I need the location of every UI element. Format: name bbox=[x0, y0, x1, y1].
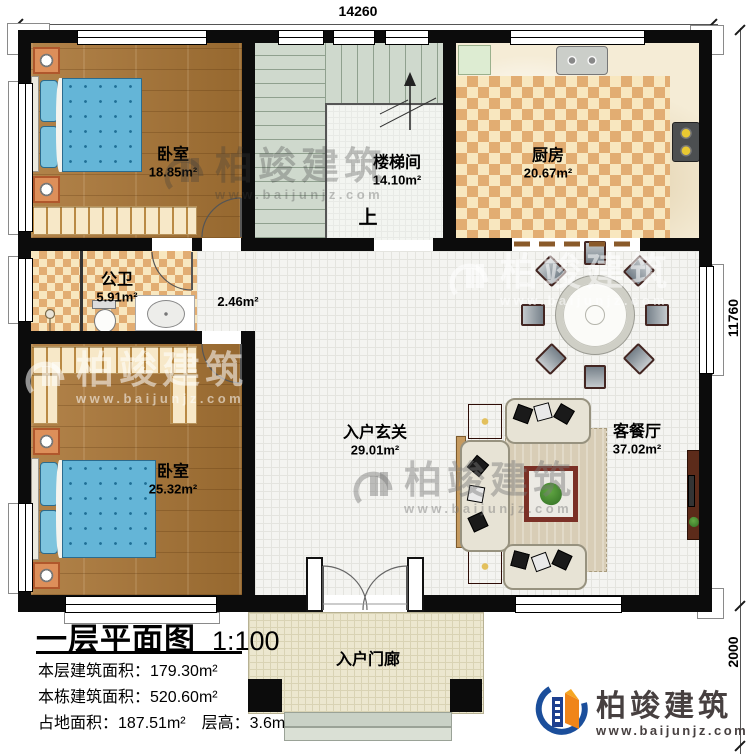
porch-step bbox=[284, 712, 452, 727]
wall bbox=[443, 43, 456, 238]
wall bbox=[433, 238, 512, 251]
wardrobe bbox=[31, 346, 197, 374]
dining-table bbox=[556, 276, 634, 354]
nightstand bbox=[33, 562, 60, 589]
entry-hall-label: 入户玄关 29.01m² bbox=[343, 424, 407, 459]
floor-plan-canvas: 14260 11760 2000 bbox=[0, 0, 750, 754]
brand-name: 柏竣建筑 bbox=[596, 691, 748, 723]
stairwell-label: 楼梯间 14.10m² bbox=[373, 154, 421, 189]
dining-chair bbox=[584, 365, 606, 389]
bedroom2-label: 卧室 25.32m² bbox=[149, 463, 197, 498]
corridor-floor bbox=[197, 251, 255, 331]
porch-label: 入户门廊 bbox=[336, 650, 400, 669]
end-table bbox=[468, 404, 502, 439]
room-area: 20.67m² bbox=[524, 166, 572, 182]
wall bbox=[241, 238, 374, 251]
room-name: 厨房 bbox=[532, 147, 564, 166]
porch-column bbox=[450, 679, 482, 712]
window bbox=[18, 258, 33, 322]
wall bbox=[242, 344, 255, 595]
wall bbox=[18, 238, 152, 251]
nightstand bbox=[33, 47, 60, 74]
door-jamb bbox=[306, 557, 323, 612]
stat-floor-area: 本层建筑面积：179.30m² bbox=[38, 659, 285, 685]
window bbox=[333, 30, 375, 45]
door-jamb bbox=[407, 557, 424, 612]
dining-table-center bbox=[585, 305, 605, 325]
dimension-right-value: 11760 bbox=[725, 290, 741, 346]
room-name: 公卫 bbox=[101, 271, 133, 290]
room-area: 29.01m² bbox=[351, 443, 399, 459]
dining-chair bbox=[584, 241, 606, 265]
porch-step bbox=[284, 727, 452, 741]
kitchen-sink bbox=[556, 46, 608, 75]
room-area: 18.85m² bbox=[149, 165, 197, 181]
room-name: 客餐厅 bbox=[613, 423, 661, 442]
title-underline bbox=[36, 651, 242, 654]
window bbox=[65, 596, 217, 613]
plan-stats: 本层建筑面积：179.30m² 本栋建筑面积：520.60m² 占地面积：187… bbox=[38, 659, 285, 737]
wall bbox=[241, 331, 255, 344]
bedroom1-label: 卧室 18.85m² bbox=[149, 146, 197, 181]
stat-footprint-height: 占地面积：187.51m² 层高：3.6m bbox=[38, 711, 285, 737]
stove bbox=[672, 122, 700, 162]
room-name: 楼梯间 bbox=[373, 154, 421, 173]
room-area: 5.91m² bbox=[96, 290, 137, 306]
room-name: 卧室 bbox=[157, 463, 189, 482]
room-name: 入户门廊 bbox=[336, 650, 400, 669]
dimension-line-top bbox=[12, 24, 718, 25]
window bbox=[278, 30, 324, 45]
nightstand bbox=[33, 176, 60, 203]
window bbox=[77, 30, 207, 45]
bathroom-partition bbox=[80, 251, 83, 331]
wardrobe bbox=[31, 206, 197, 235]
room-area: 25.32m² bbox=[149, 482, 197, 498]
window bbox=[515, 596, 622, 613]
window bbox=[510, 30, 645, 45]
brand-logo: 柏竣建筑 www.baijunjz.com bbox=[534, 681, 748, 748]
bathroom-sink bbox=[147, 300, 185, 328]
tv bbox=[688, 475, 695, 507]
room-name: 卧室 bbox=[157, 146, 189, 165]
wall bbox=[192, 238, 202, 251]
window bbox=[699, 266, 714, 374]
wall bbox=[242, 43, 255, 238]
living-dining-label: 客餐厅 37.02m² bbox=[613, 423, 661, 458]
bed-quilt bbox=[62, 78, 142, 172]
bathroom-label: 公卫 5.91m² bbox=[96, 271, 137, 306]
stair-treads bbox=[255, 43, 325, 238]
room-area: 37.02m² bbox=[613, 442, 661, 458]
window bbox=[385, 30, 429, 45]
sofa-pillow bbox=[467, 485, 486, 504]
brand-logo-icon bbox=[534, 681, 590, 748]
room-area: 2.46m² bbox=[217, 294, 258, 310]
nightstand bbox=[33, 428, 60, 455]
stat-building-area: 本栋建筑面积：520.60m² bbox=[38, 685, 285, 711]
fridge bbox=[458, 45, 491, 75]
dimension-porch-value: 2000 bbox=[725, 624, 741, 680]
wardrobe bbox=[31, 374, 58, 424]
toilet bbox=[94, 309, 116, 333]
wall bbox=[640, 238, 712, 251]
window bbox=[18, 83, 33, 232]
end-table bbox=[468, 549, 502, 584]
brand-website: www.baijunjz.com bbox=[596, 724, 748, 738]
dimension-top-value: 14260 bbox=[323, 3, 393, 19]
corridor-label: 2.46m² bbox=[217, 294, 258, 310]
room-name: 入户玄关 bbox=[343, 424, 407, 443]
room-area: 14.10m² bbox=[373, 173, 421, 189]
dining-chair bbox=[645, 304, 669, 326]
wardrobe bbox=[170, 374, 197, 424]
stair-treads bbox=[325, 43, 443, 105]
stair-up-label: 上 bbox=[358, 203, 377, 230]
kitchen-label: 厨房 20.67m² bbox=[524, 147, 572, 182]
wall bbox=[18, 331, 202, 344]
window bbox=[18, 503, 33, 592]
bed-quilt bbox=[62, 460, 156, 558]
dining-chair bbox=[521, 304, 545, 326]
